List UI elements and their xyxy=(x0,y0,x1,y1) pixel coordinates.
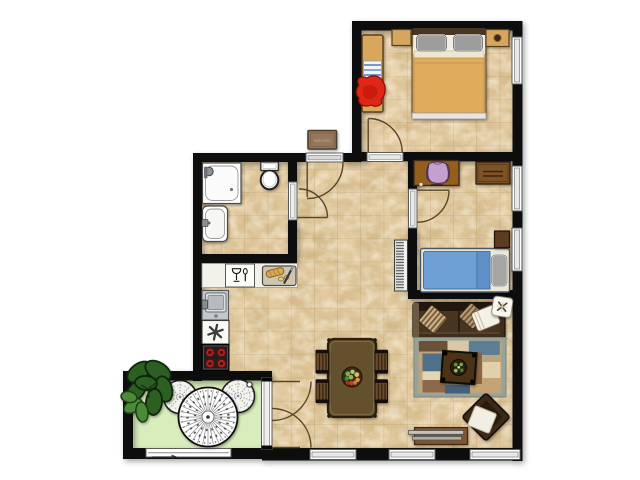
svg-text:welcome: welcome xyxy=(314,138,331,143)
